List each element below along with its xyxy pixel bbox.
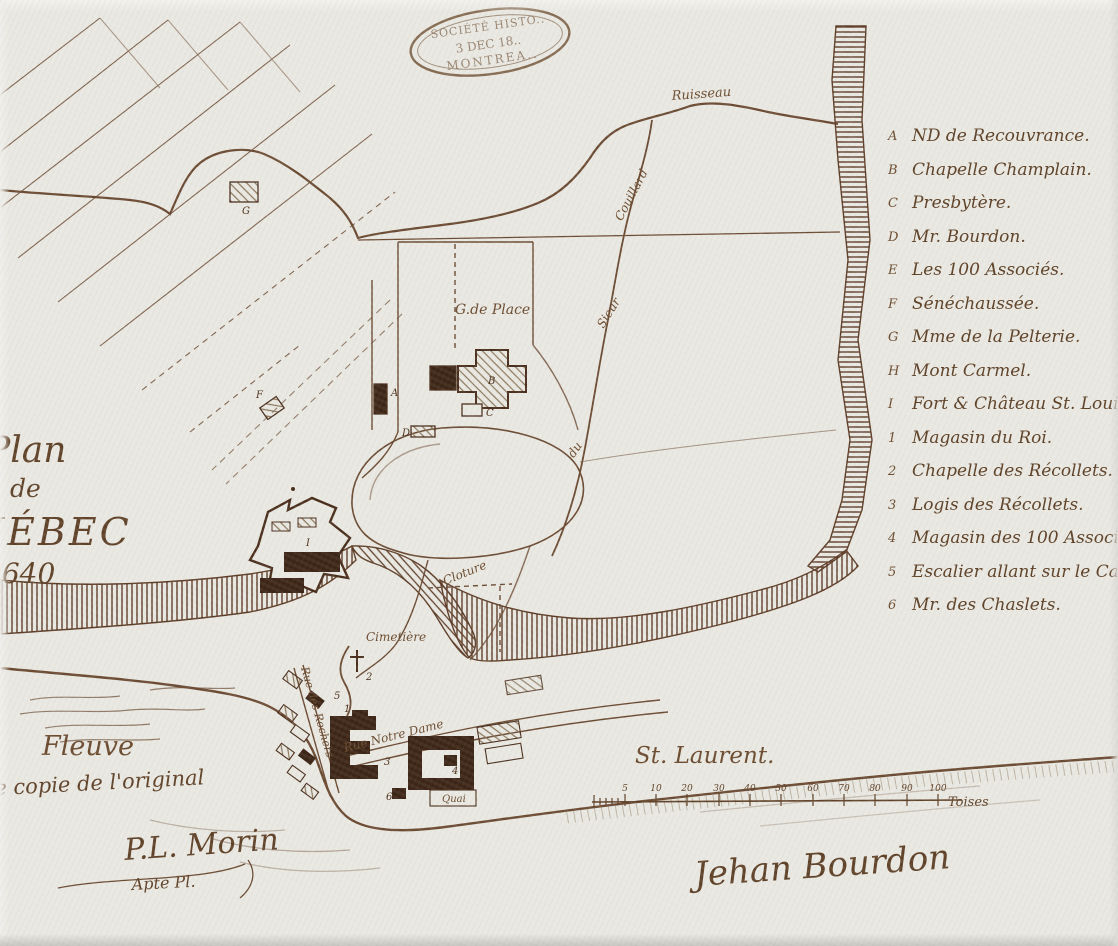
scale-tick: 50 bbox=[775, 784, 787, 794]
legend-item-label: Fort & Château St. Louis. bbox=[911, 394, 1118, 414]
legend-item-label: Presbytère. bbox=[911, 193, 1011, 213]
marker-C: C bbox=[486, 408, 494, 419]
title-plan: Plan bbox=[0, 430, 66, 471]
label-sieur: Sieur bbox=[594, 294, 624, 330]
legend-item-label: Mr. des Chaslets. bbox=[911, 595, 1061, 615]
label-fleuve: Fleuve bbox=[41, 731, 134, 762]
map-drawing: SOCIÉTÉ HISTO.. 3 DEC 18.. MONTREA.. Pla… bbox=[0, 0, 1118, 946]
scale-tick: 70 bbox=[838, 784, 850, 794]
legend-item-key: B bbox=[887, 163, 898, 178]
legend-item-label: Magasin des 100 Associés. bbox=[911, 528, 1118, 548]
scale-tick: 100 bbox=[929, 784, 946, 794]
building-d-bourdon bbox=[411, 426, 435, 437]
legend-item-key: 2 bbox=[887, 464, 896, 479]
title-1640: 1640 bbox=[0, 557, 55, 590]
marker-1: 1 bbox=[344, 704, 350, 715]
field-lot-lines bbox=[0, 18, 402, 484]
scale-tick: 20 bbox=[680, 784, 693, 794]
legend-item-key: A bbox=[887, 129, 897, 144]
marker-5: 5 bbox=[334, 691, 340, 702]
legend-item-label: Chapelle Champlain. bbox=[912, 160, 1092, 180]
marker-G: G bbox=[242, 206, 250, 217]
stream-lines bbox=[0, 104, 840, 556]
marker-2: 2 bbox=[365, 672, 372, 683]
building-a-recouvrance bbox=[374, 384, 387, 414]
scale-tick: 60 bbox=[807, 784, 819, 794]
marker-B: B bbox=[487, 376, 495, 387]
label-ruisseau: Ruisseau bbox=[670, 85, 731, 104]
legend-item-label: Mr. Bourdon. bbox=[911, 227, 1026, 247]
legend-item-label: Escalier allant sur le Cap. bbox=[911, 562, 1118, 582]
legend-item-label: Chapelle des Récollets. bbox=[912, 461, 1113, 481]
scale-tick: 90 bbox=[901, 784, 913, 794]
legend-item-key: 5 bbox=[888, 565, 896, 580]
legend-item-key: H bbox=[887, 364, 900, 379]
stamp: SOCIÉTÉ HISTO.. 3 DEC 18.. MONTREA.. bbox=[406, 0, 573, 85]
legend-item-label: Mont Carmel. bbox=[911, 361, 1031, 381]
legend-item-key: D bbox=[887, 230, 899, 245]
legend-item-key: E bbox=[887, 263, 898, 278]
marker-F: F bbox=[255, 390, 264, 401]
scale-tick: 10 bbox=[650, 784, 662, 794]
attribution-line3: Apte Pl. bbox=[129, 872, 196, 894]
legend-item-label: Sénéchaussée. bbox=[912, 294, 1039, 314]
roads-and-enclosures bbox=[294, 242, 836, 796]
scale-tick: 5 bbox=[622, 784, 628, 794]
attribution-line1: ie copie de l'original bbox=[0, 765, 205, 800]
title-de: de bbox=[10, 474, 41, 503]
scale-tick: 40 bbox=[743, 784, 756, 794]
scale-tick: 30 bbox=[713, 784, 725, 794]
legend-item-key: 6 bbox=[888, 598, 896, 613]
label-quai: Quai bbox=[442, 794, 466, 805]
legend-item-key: 4 bbox=[887, 531, 896, 546]
cliff-bands bbox=[0, 26, 872, 661]
label-du: du bbox=[565, 439, 585, 460]
label-cimetiere: Cimetière bbox=[366, 630, 426, 644]
legend-item-label: Mme de la Pelterie. bbox=[911, 327, 1080, 347]
legend-item-label: Logis des Récollets. bbox=[911, 495, 1084, 515]
legend-item-label: ND de Recouvrance. bbox=[911, 126, 1090, 146]
marker-A: A bbox=[390, 388, 398, 399]
legend-item-key: 3 bbox=[888, 498, 896, 513]
legend-item-key: G bbox=[888, 330, 898, 345]
building-presbytere-dark bbox=[430, 366, 456, 390]
scale-tick: 80 bbox=[869, 784, 881, 794]
legend-item-key: I bbox=[887, 397, 894, 412]
marker-4: 4 bbox=[451, 766, 458, 777]
building-g-pelterie bbox=[230, 182, 258, 202]
label-couillard: Couillard bbox=[612, 167, 651, 223]
legend-item-key: C bbox=[888, 196, 898, 211]
building-f-senechaussee bbox=[260, 397, 284, 420]
title-quebec: QUÉBEC bbox=[0, 510, 132, 554]
attribution: ie copie de l'original P.L. Morin Apte P… bbox=[0, 765, 280, 898]
label-st-laurent: St. Laurent. bbox=[635, 743, 774, 769]
legend-item-label: Les 100 Associés. bbox=[911, 260, 1064, 280]
marker-3: 3 bbox=[384, 757, 390, 768]
cartographer-signature: Jehan Bourdon bbox=[687, 837, 952, 895]
cross-symbol bbox=[350, 650, 364, 672]
label-gde-place: G.de Place bbox=[455, 302, 530, 318]
legend-item-label: Magasin du Roi. bbox=[911, 428, 1052, 448]
map-page: SOCIÉTÉ HISTO.. 3 DEC 18.. MONTREA.. Pla… bbox=[0, 0, 1118, 946]
building-c-small bbox=[462, 404, 482, 416]
legend: A ND de Recouvrance. B Chapelle Champlai… bbox=[887, 126, 1118, 615]
label-rue-des-rochers: Rue des Rochers bbox=[298, 664, 337, 759]
building-4-magasin-associes bbox=[408, 736, 474, 790]
marker-6: 6 bbox=[386, 792, 393, 803]
attribution-line2: P.L. Morin bbox=[122, 822, 280, 868]
legend-item-key: F bbox=[887, 297, 898, 312]
map-title: Plan de QUÉBEC 1640 bbox=[0, 430, 132, 590]
label-cloture: Cloture bbox=[441, 558, 489, 588]
legend-item-key: 1 bbox=[888, 431, 896, 446]
map-labels: Ruisseau Couillard Sieur du G.de Place C… bbox=[41, 85, 774, 805]
building-6-chaslets bbox=[392, 788, 406, 799]
marker-D: D bbox=[401, 428, 410, 439]
scale-unit: Toises bbox=[948, 795, 989, 810]
